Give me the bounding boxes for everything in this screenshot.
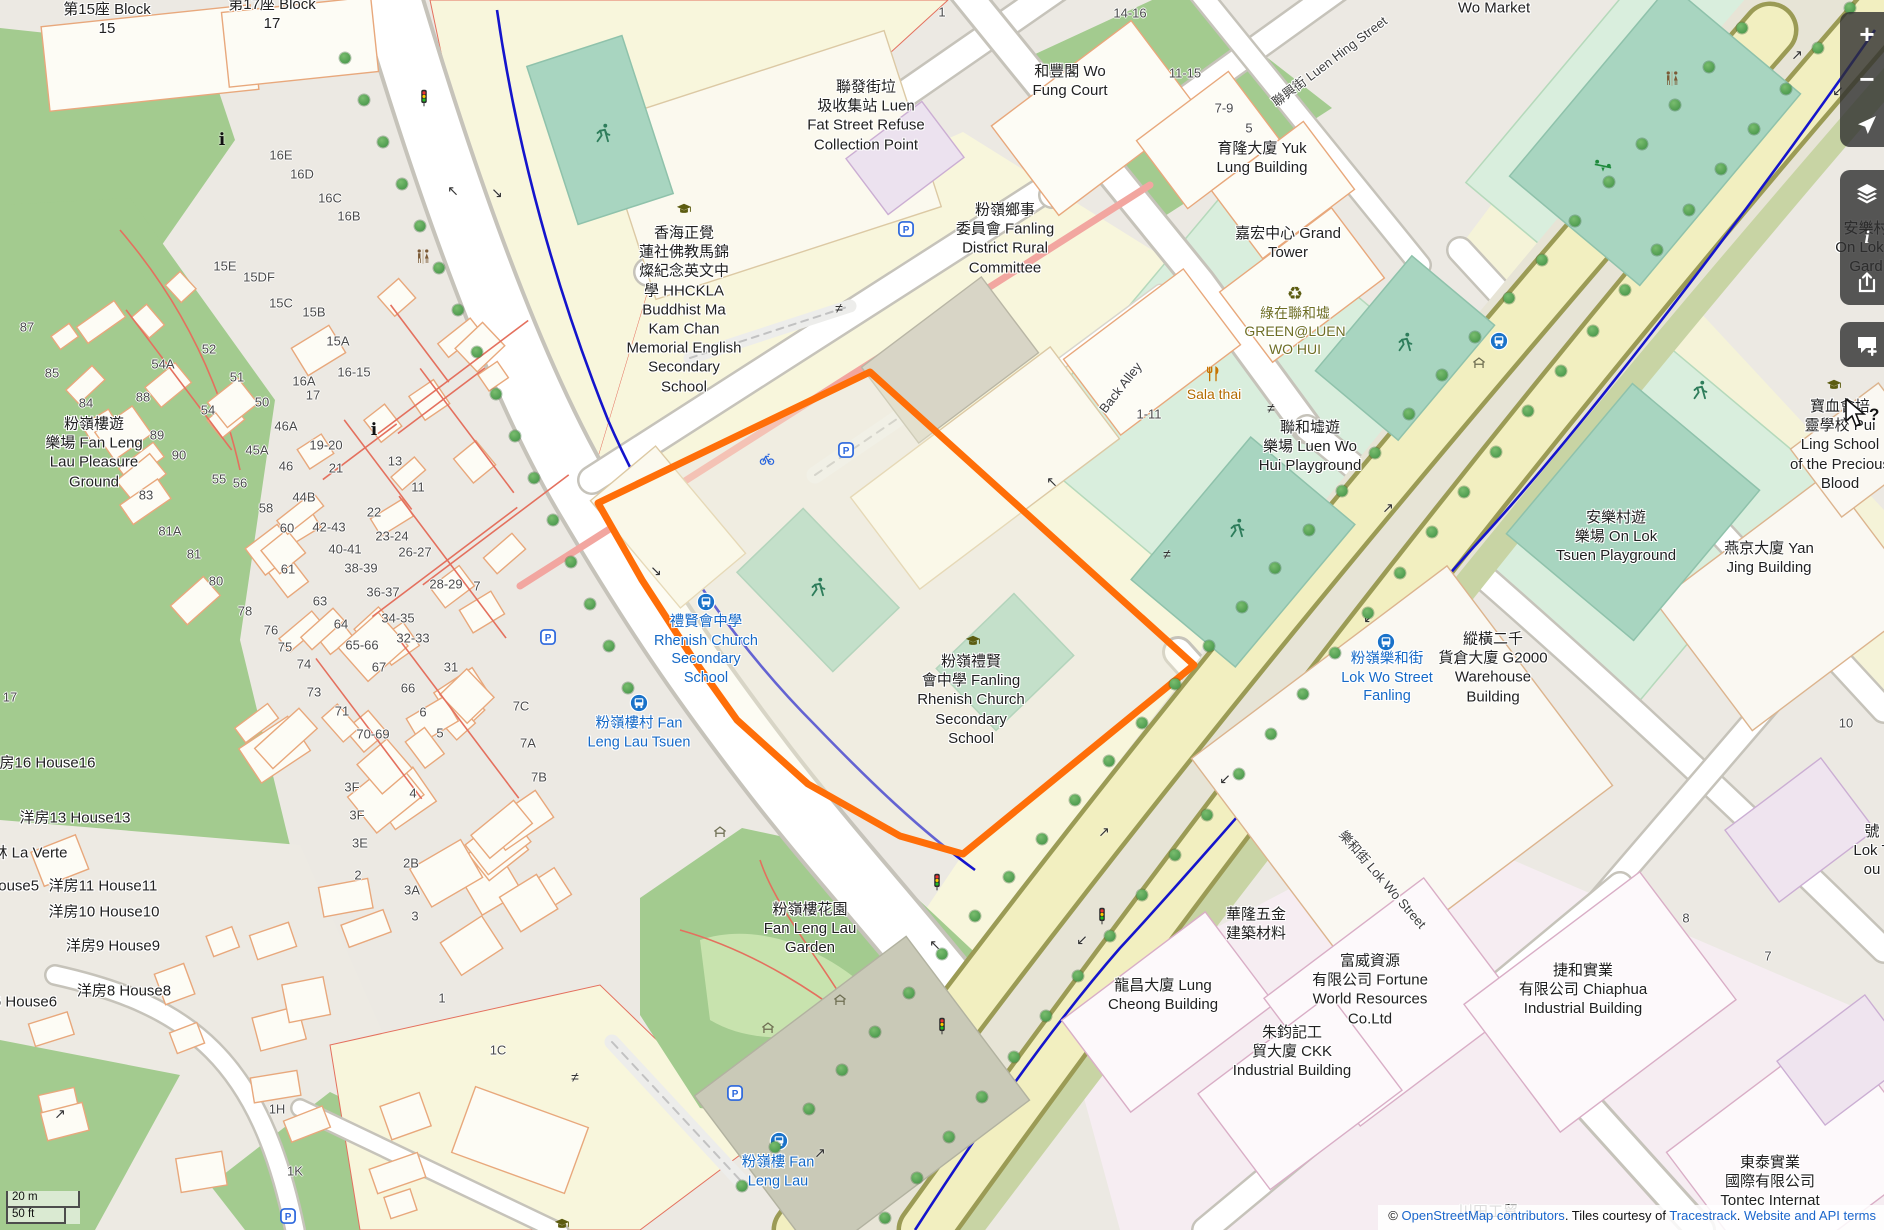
shelter-icon: [833, 993, 848, 1008]
house-number: 10: [1839, 716, 1853, 731]
tree-icon: [1394, 567, 1405, 578]
label-fortune-world-resources: 富威資源有限公司 FortuneWorld ResourcesCo.Ltd: [1312, 952, 1428, 1029]
house-number: 74: [297, 657, 311, 672]
label-green-luen-wo-hui: 綠在聯和墟GREEN@LUENWO HUI: [1244, 305, 1345, 359]
tree-icon: [1603, 177, 1614, 188]
house-number: 89: [150, 428, 164, 443]
tree-icon: [1523, 406, 1534, 417]
traffic-signal-icon: [415, 89, 434, 108]
house-number: 65-66: [345, 638, 378, 653]
label-lok-wo-street-fanling-stop: 粉嶺樂和街Lok Wo StreetFanling: [1341, 650, 1433, 706]
label-house5: 洋房5 House5: [0, 876, 39, 895]
comment-icon: [1855, 333, 1879, 357]
runner-icon: [1394, 331, 1416, 353]
tree-icon: [1587, 325, 1598, 336]
house-number: 66: [401, 681, 415, 696]
tree-icon: [1555, 366, 1566, 377]
arrow-icon: ↖: [447, 183, 459, 200]
label-house9: 洋房9 House9: [66, 936, 160, 955]
svg-text:?: ?: [1869, 405, 1879, 424]
map-canvas[interactable]: P: [0, 0, 1884, 1230]
house-number: 71: [335, 704, 349, 719]
tree-icon: [1403, 409, 1414, 420]
tree-icon: [1670, 100, 1681, 111]
house-number: 15DF: [243, 270, 275, 285]
house-number: 3E: [352, 836, 368, 851]
house-number: 81: [187, 547, 201, 562]
tree-icon: [1619, 285, 1630, 296]
house-number: 6: [419, 705, 426, 720]
tree-icon: [1470, 331, 1481, 342]
bus-icon: [630, 694, 649, 713]
tree-icon: [1003, 872, 1014, 883]
house-number: 1: [438, 991, 445, 1006]
label-grand-tower: 嘉宏中心 GrandTower: [1235, 224, 1341, 262]
tree-icon: [1237, 602, 1248, 613]
school-icon: [676, 201, 693, 218]
parking-icon: [280, 1208, 297, 1225]
tree-icon: [837, 1065, 848, 1076]
house-number: 51: [230, 370, 244, 385]
tree-icon: [528, 473, 539, 484]
tree-icon: [944, 1132, 955, 1143]
house-number: 46: [279, 459, 293, 474]
label-chiaphua-industrial-building: 捷和實業有限公司 ChiaphuaIndustrial Building: [1519, 961, 1647, 1019]
label-house11: 洋房11 House11: [49, 876, 158, 895]
house-number: 54: [201, 403, 215, 418]
label-house10: 洋房10 House10: [49, 902, 160, 921]
tree-icon: [1426, 527, 1437, 538]
tree-icon: [434, 263, 445, 274]
arrow-icon: ↖: [1046, 474, 1058, 491]
label-fan-leng-lau-tsuen-stop: 粉嶺樓村 FanLeng Lau Tsuen: [588, 714, 691, 751]
tree-icon: [585, 599, 596, 610]
layers-icon: [1855, 181, 1879, 205]
tree-icon: [1266, 729, 1277, 740]
navigate-button[interactable]: [1840, 102, 1884, 147]
tree-icon: [937, 949, 948, 960]
tree-icon: [1330, 648, 1341, 659]
share-icon: [1855, 271, 1879, 295]
house-number: 84: [79, 396, 93, 411]
tree-icon: [340, 53, 351, 64]
house-number: 36-37: [366, 585, 399, 600]
house-number: 61: [281, 562, 295, 577]
house-number: 5: [1245, 121, 1252, 136]
tree-icon: [509, 431, 520, 442]
label-la-verte: 林 La Verte: [0, 843, 68, 862]
house-number: 2: [354, 868, 361, 883]
tree-icon: [1459, 487, 1470, 498]
house-number: 88: [136, 390, 150, 405]
house-number: 31: [444, 660, 458, 675]
house-number: 1H: [269, 1102, 286, 1117]
tree-icon: [976, 1092, 987, 1103]
house-number: 14-16: [1113, 6, 1146, 21]
house-number: 52: [202, 342, 216, 357]
zoom-in-button[interactable]: +: [1840, 12, 1884, 57]
house-number: 16D: [290, 167, 314, 182]
house-number: 58: [259, 501, 273, 516]
house-number: 19-20: [309, 438, 342, 453]
house-number: 40-41: [328, 542, 361, 557]
label-wah-lung-hardware: 華隆五金建築材料: [1226, 905, 1286, 943]
house-number: 34-35: [381, 611, 414, 626]
house-number: 73: [307, 685, 321, 700]
house-number: 8: [1682, 911, 1689, 926]
house-number: 64: [334, 617, 348, 632]
house-number: 3F: [349, 808, 364, 823]
house-number: 23-24: [375, 529, 408, 544]
parking-icon: [727, 1085, 744, 1102]
parking-bicycle-icon: [759, 451, 775, 467]
tree-icon: [1137, 890, 1148, 901]
tree-icon: [623, 683, 634, 694]
house-number: 1-11: [1136, 407, 1161, 422]
runner-icon: [807, 576, 829, 598]
tree-icon: [1303, 524, 1314, 535]
house-number: 75: [278, 640, 292, 655]
house-number: 44B: [292, 490, 315, 505]
tree-icon: [1337, 486, 1348, 497]
attribution-text: . Tiles courtesy of: [1565, 1208, 1670, 1223]
tree-icon: [1233, 769, 1244, 780]
house-number: 22: [367, 505, 381, 520]
house-number: 3: [411, 909, 418, 924]
label-wo-market: Wo Market: [1458, 0, 1530, 18]
layers-button[interactable]: [1840, 170, 1884, 215]
house-number: 67: [372, 660, 386, 675]
tree-icon: [1070, 795, 1081, 806]
house-number: 1C: [490, 1043, 507, 1058]
label-block-15: 第15座 Block15: [63, 0, 151, 38]
label-house8: 洋房8 House8: [77, 981, 171, 1000]
house-number: 7A: [520, 736, 536, 751]
label-hhckla-school: 香海正覺蓮社佛教馬錦燦紀念英文中學 HHCKLABuddhist MaKam C…: [626, 224, 741, 397]
house-number: 15A: [326, 334, 349, 349]
label-fanling-rhenish-school: 粉嶺禮賢會中學 FanlingRhenish ChurchSecondarySc…: [917, 652, 1025, 748]
bus-icon: [697, 593, 716, 612]
house-number: 1K: [287, 1164, 303, 1179]
tree-icon: [490, 389, 501, 400]
tree-icon: [1270, 563, 1281, 574]
label-yan-jing-building: 燕京大廈 YanJing Building: [1724, 539, 1814, 577]
tree-icon: [1201, 809, 1212, 820]
scale-control: 20 m 50 ft: [6, 1191, 80, 1224]
house-number: 90: [172, 448, 186, 463]
tree-icon: [1073, 971, 1084, 982]
tree-icon: [604, 641, 615, 652]
arrow-icon: ↗: [1791, 47, 1803, 64]
map-tools: i: [1840, 170, 1884, 305]
house-number: 7B: [531, 770, 547, 785]
house-number: 16-15: [337, 365, 370, 380]
label-luen-hing-street: 聯興街 Luen Hing Street: [1269, 13, 1391, 111]
label-sala-thai: Sala thai: [1187, 386, 1241, 404]
house-number: 87: [20, 320, 34, 335]
restaurant-icon: [1205, 366, 1221, 382]
house-number: 78: [238, 604, 252, 619]
mouse-cursor: ?: [1845, 398, 1884, 432]
traffic-signal-icon: [933, 1017, 952, 1036]
tree-icon: [377, 137, 388, 148]
traffic-signal-icon: [1093, 907, 1112, 926]
house-number: 60: [280, 521, 294, 536]
house-number: 70-69: [356, 727, 389, 742]
seesaw-icon: [1593, 155, 1613, 175]
house-number: 16C: [318, 191, 342, 206]
label-yuk-lung-building: 育隆大廈 YukLung Building: [1217, 139, 1308, 177]
nav-icon: [1855, 113, 1879, 137]
tree-icon: [1437, 370, 1448, 381]
label-rhenish-church-stop: 禮賢會中學Rhenish ChurchSecondarySchool: [654, 613, 758, 687]
tree-icon: [912, 1172, 923, 1183]
arrow-icon: ↙: [1076, 932, 1088, 949]
info-icon: ℹ: [371, 420, 377, 440]
house-number: 7-9: [1215, 101, 1234, 116]
tree-icon: [1780, 83, 1791, 94]
tree-icon: [1652, 245, 1663, 256]
attribution-dot: .: [1737, 1208, 1744, 1223]
house-number: 28-29: [429, 577, 462, 592]
crossing-icon: ≠: [1163, 546, 1171, 562]
tree-icon: [566, 557, 577, 568]
tree-icon: [1362, 608, 1373, 619]
tree-icon: [903, 988, 914, 999]
house-number: 17: [3, 690, 17, 705]
house-number: 85: [45, 366, 59, 381]
label-fan-leng-lau-pleasure-ground: 粉嶺樓遊樂場 Fan LengLau PleasureGround: [45, 415, 143, 492]
parking-icon: [898, 221, 915, 238]
tree-icon: [880, 1213, 891, 1224]
house-number: 38-39: [344, 561, 377, 576]
tracestrack-link[interactable]: Tracestrack: [1669, 1208, 1736, 1223]
tree-icon: [1137, 717, 1148, 728]
house-number: 2B: [403, 856, 419, 871]
toilets-icon: [414, 248, 432, 266]
tree-icon: [1040, 1011, 1051, 1022]
arrow-icon: ↘: [491, 185, 503, 202]
map-overlay: P: [0, 0, 1884, 1230]
attribution-bar: © OpenStreetMap contributors. Tiles cour…: [1378, 1205, 1884, 1230]
toilets-icon: [1663, 70, 1681, 88]
share-button[interactable]: [1840, 260, 1884, 305]
house-number: 80: [209, 574, 223, 589]
house-number: 13: [388, 454, 402, 469]
house-number: 15C: [269, 296, 293, 311]
crossing-icon: ≠: [571, 1069, 579, 1085]
tree-icon: [1737, 23, 1748, 34]
tree-icon: [1103, 756, 1114, 767]
label-rural-committee: 粉嶺鄉事委員會 FanlingDistrict RuralCommittee: [956, 201, 1054, 278]
label-lok-tsuen-partial: 號Lok Tou: [1853, 822, 1884, 880]
tree-icon: [1298, 688, 1309, 699]
info-icon: ℹ: [219, 130, 225, 150]
tree-icon: [1491, 446, 1502, 457]
house-number: 26-27: [398, 545, 431, 560]
tree-icon: [1684, 204, 1695, 215]
house-number: 15E: [213, 259, 236, 274]
tree-icon: [1570, 216, 1581, 227]
tree-icon: [472, 347, 483, 358]
school-icon: [1826, 377, 1843, 394]
house-number: 32-33: [396, 631, 429, 646]
tree-icon: [453, 305, 464, 316]
label-fan-leng-lau-garden: 粉嶺樓花園Fan Leng LauGarden: [764, 900, 857, 958]
tree-icon: [547, 515, 558, 526]
house-number: 7: [1764, 949, 1771, 964]
tree-icon: [1203, 640, 1214, 651]
arrow-icon: ↗: [1382, 500, 1394, 517]
tree-icon: [970, 910, 981, 921]
shelter-icon: [761, 1021, 776, 1036]
house-number: 7C: [513, 699, 530, 714]
tree-icon: [358, 95, 369, 106]
arrow-icon: ↗: [814, 1145, 826, 1162]
map-info-button[interactable]: i: [1840, 215, 1884, 260]
house-number: 16E: [269, 148, 292, 163]
osm-contributors-link[interactable]: OpenStreetMap contributors: [1402, 1208, 1565, 1223]
house-number: 16A: [292, 374, 315, 389]
label-tontec-international: 東泰實業國際有限公司Tontec Internat: [1720, 1153, 1819, 1211]
school-icon: [965, 633, 982, 650]
terms-link[interactable]: Website and API terms: [1744, 1208, 1876, 1223]
school-icon: [554, 1216, 571, 1230]
house-number: 46A: [274, 419, 297, 434]
tree-icon: [1703, 61, 1714, 72]
label-ckk-industrial-building: 朱鈞記工貿大廈 CKKIndustrial Building: [1233, 1023, 1351, 1081]
house-number: 56: [233, 476, 247, 491]
tree-icon: [1037, 833, 1048, 844]
runner-icon: [1689, 379, 1711, 401]
tree-icon: [1169, 850, 1180, 861]
tree-icon: [803, 1103, 814, 1114]
scale-metric: 20 m: [6, 1191, 80, 1208]
label-luen-wo-hui-playground: 聯和墟遊樂場 Luen WoHui Playground: [1259, 418, 1362, 476]
zoom-out-button[interactable]: −: [1840, 57, 1884, 102]
arrow-icon: ↙: [1219, 771, 1231, 788]
house-number: 63: [313, 594, 327, 609]
shelter-icon: [713, 825, 728, 840]
tree-icon: [1008, 1051, 1019, 1062]
shelter-icon: [1472, 356, 1487, 371]
tree-icon: [870, 1026, 881, 1037]
label-refuse-collection-point: 聯發街垃圾收集站 LuenFat Street RefuseCollection…: [807, 78, 925, 155]
house-number: 81A: [158, 524, 181, 539]
house-number: 42-43: [312, 520, 345, 535]
copyright-symbol: ©: [1388, 1208, 1401, 1223]
house-number: 54A: [151, 357, 174, 372]
tree-icon: [396, 179, 407, 190]
bus-icon: [1490, 332, 1509, 351]
arrow-icon: ↗: [1098, 824, 1110, 841]
label-g2000-warehouse: 縱橫二千貨倉大廈 G2000WarehouseBuilding: [1438, 630, 1547, 707]
house-number: 4: [409, 786, 416, 801]
house-number: 7: [473, 579, 480, 594]
house-number: 21: [329, 461, 343, 476]
label-fan-leng-lau-stop: 粉嶺樓 FanLeng Lau: [742, 1153, 815, 1190]
house-number: 3F: [344, 780, 359, 795]
label-lung-cheong-building: 龍昌大廈 LungCheong Building: [1108, 976, 1218, 1014]
house-number: 16B: [337, 209, 360, 224]
traffic-signal-icon: [928, 873, 947, 892]
tree-icon: [1370, 447, 1381, 458]
tree-icon: [1637, 138, 1648, 149]
arrow-icon: ↘: [650, 563, 662, 580]
house-number: 50: [255, 395, 269, 410]
crossing-icon: ≠: [835, 300, 843, 316]
scale-imperial: 50 ft: [6, 1208, 66, 1225]
label-block-17: 第17座 Block17: [228, 0, 316, 33]
runner-icon: [592, 122, 614, 144]
house-number: 17: [306, 388, 320, 403]
add-note-button[interactable]: [1840, 322, 1884, 367]
tree-icon: [1537, 254, 1548, 265]
tree-icon: [1105, 930, 1116, 941]
tree-icon: [415, 221, 426, 232]
label-house13: 洋房13 House13: [20, 808, 131, 827]
house-number: 3A: [404, 883, 420, 898]
tree-icon: [1503, 293, 1514, 304]
label-wo-fung-court: 和豐閣 WoFung Court: [1032, 62, 1107, 100]
house-number: 45A: [245, 443, 268, 458]
parking-icon: [838, 442, 855, 459]
zoom-controls: +−: [1840, 12, 1884, 147]
label-house16: 洋房16 House16: [0, 753, 95, 772]
house-number: 83: [139, 488, 153, 503]
house-number: 11: [411, 480, 425, 495]
tree-icon: [1812, 43, 1823, 54]
tree-icon: [737, 1181, 748, 1192]
recycling-icon: ♻: [1287, 284, 1303, 305]
label-house6: 洋房6 House6: [0, 992, 57, 1011]
tree-icon: [770, 1142, 781, 1153]
parking-icon: [540, 629, 557, 646]
tree-icon: [1716, 164, 1727, 175]
note-control: [1840, 322, 1884, 367]
house-number: 15B: [302, 305, 325, 320]
runner-icon: [1226, 517, 1248, 539]
house-number: 5: [436, 726, 443, 741]
label-on-lok-tsuen-playground: 安樂村遊樂場 On LokTsuen Playground: [1556, 508, 1676, 566]
house-number: 11-15: [1169, 66, 1201, 81]
house-number: 55: [212, 472, 226, 487]
label-lok-wo-street: 樂和街 Lok Wo Street: [1335, 827, 1429, 932]
crossing-icon: ≠: [1267, 400, 1275, 416]
arrow-icon: ↗: [54, 1106, 66, 1123]
tree-icon: [1748, 124, 1759, 135]
tree-icon: [1170, 679, 1181, 690]
bus-icon: [1377, 633, 1396, 652]
house-number: 1: [938, 5, 945, 20]
house-number: 76: [264, 623, 278, 638]
